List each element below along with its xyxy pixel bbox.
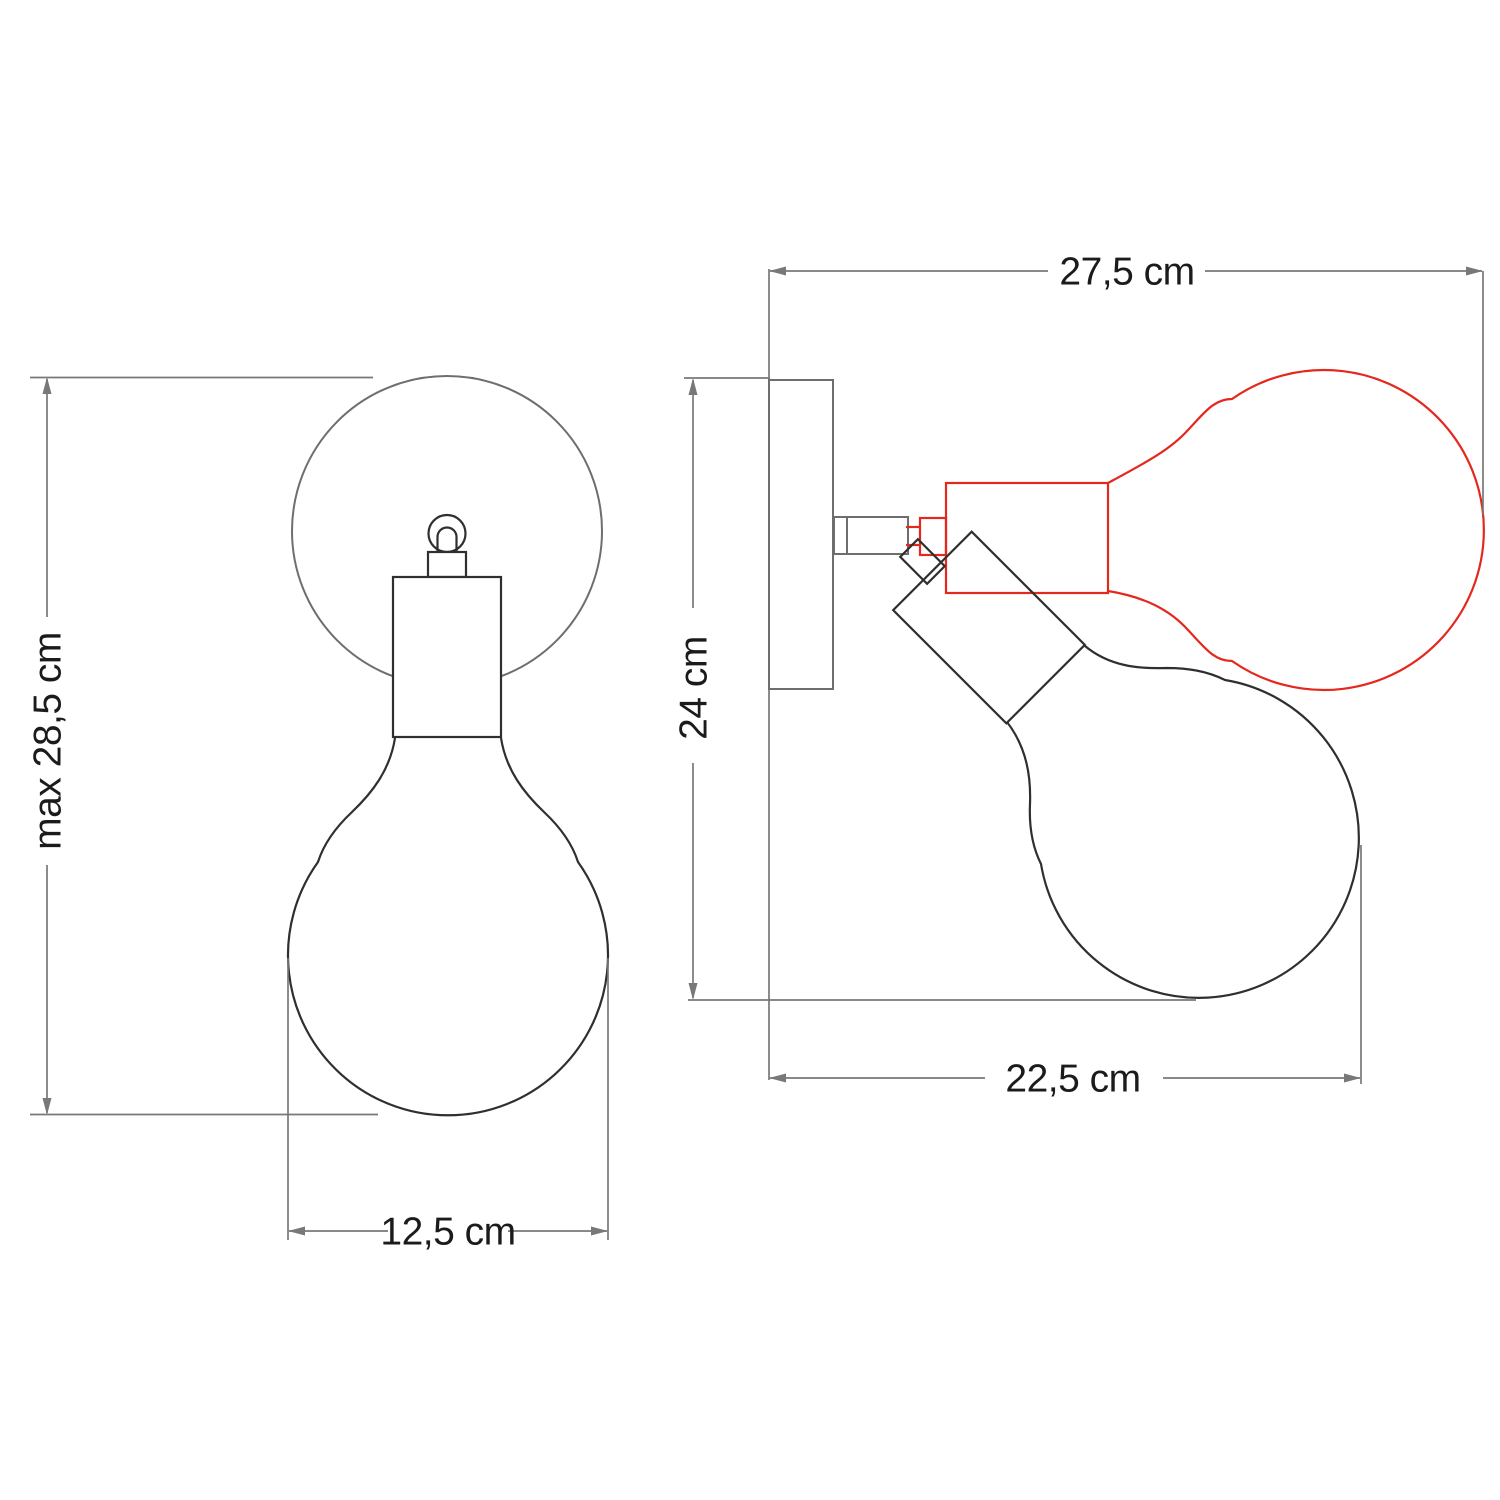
mounting-arm <box>834 517 908 554</box>
wall-plate-side <box>769 380 833 689</box>
globe-bulb-side <box>1007 646 1359 998</box>
alternate-position-outline <box>906 370 1484 690</box>
arrow-down-icon <box>43 1098 52 1115</box>
alt-pivot-cap <box>920 518 946 555</box>
alt-globe-bulb <box>1108 370 1484 690</box>
dim-label-front-width: 12,5 cm <box>380 1211 515 1254</box>
arrow-up-icon <box>43 377 52 394</box>
dim-label-side-reach: 22,5 cm <box>1005 1058 1140 1101</box>
arrow-right-icon <box>591 1227 608 1236</box>
dim-label-front-height: max 28,5 cm <box>27 632 70 850</box>
tilted-position-outline <box>893 532 1359 998</box>
dimension-annotations: max 28,5 cm 12,5 cm 27,5 cm <box>27 251 1483 1254</box>
lamp-holder-front <box>393 577 501 737</box>
arrow-right-icon <box>1344 1074 1361 1083</box>
dim-label-side-height: 24 cm <box>673 636 716 740</box>
arrow-down-icon <box>689 983 698 1000</box>
arrow-up-icon <box>689 378 698 395</box>
hanging-ring-outer <box>429 515 466 552</box>
dim-front-height: max 28,5 cm <box>27 377 378 1115</box>
lamp-dimension-diagram: max 28,5 cm 12,5 cm 27,5 cm <box>0 0 1500 1500</box>
arrow-left-icon <box>769 1074 786 1083</box>
dim-side-width: 27,5 cm <box>769 251 1483 515</box>
front-view <box>288 376 608 1115</box>
side-view <box>769 269 1484 1080</box>
dim-side-height: 24 cm <box>673 378 1196 1000</box>
arrow-left-icon <box>769 267 786 276</box>
arrow-right-icon <box>1466 267 1483 276</box>
ring-cap <box>428 552 466 577</box>
lamp-holder-side <box>893 532 1085 724</box>
diagram-page: max 28,5 cm 12,5 cm 27,5 cm <box>0 0 1500 1500</box>
hanging-ring-inner <box>438 528 457 554</box>
arrow-left-icon <box>288 1227 305 1236</box>
alt-lamp-holder <box>946 483 1108 593</box>
dim-front-width: 12,5 cm <box>288 958 608 1254</box>
globe-bulb-front <box>288 738 608 1115</box>
dim-label-side-width: 27,5 cm <box>1059 251 1194 294</box>
dim-side-reach: 22,5 cm <box>769 845 1361 1101</box>
